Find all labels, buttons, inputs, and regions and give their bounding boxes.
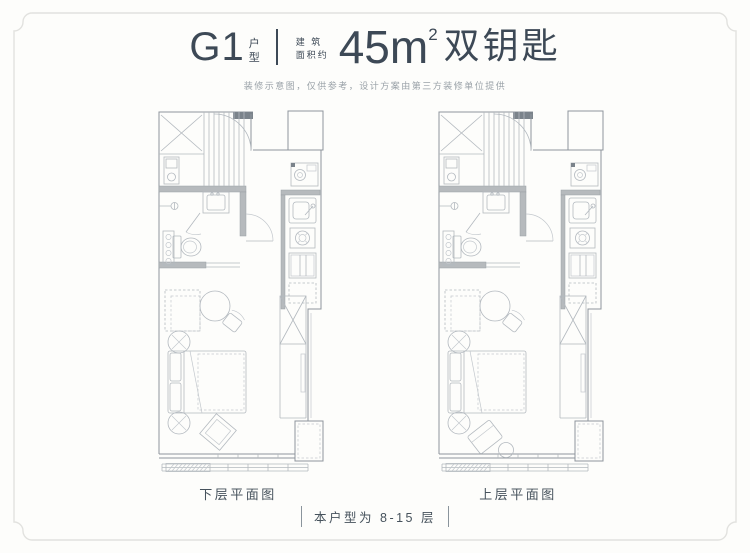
floor-plan-lower: 下层平面图 bbox=[148, 106, 328, 503]
floor-range-note: 本户型为 8-15 层 bbox=[301, 506, 449, 527]
lounge-chair-line bbox=[472, 425, 494, 442]
lounge-chair-seat bbox=[467, 420, 503, 455]
rug-inner bbox=[205, 419, 230, 444]
floor-plan-upper-svg bbox=[428, 106, 608, 478]
unit-type-char-top: 户 bbox=[249, 38, 260, 52]
rug-ottoman bbox=[200, 414, 237, 451]
small-round-table bbox=[499, 443, 514, 458]
floor-plan-upper: 上层平面图 bbox=[428, 106, 608, 503]
disclaimer-text: 装修示意图，仅供参考，设计方案由第三方装修单位提供 bbox=[0, 79, 750, 92]
caption-lower-plan: 下层平面图 bbox=[148, 484, 328, 503]
footer: 本户型为 8-15 层 bbox=[0, 506, 750, 527]
area-label: 建 筑 面积约 bbox=[296, 36, 329, 63]
area-value: 45m bbox=[339, 24, 428, 70]
title-suffix: 双钥匙 bbox=[444, 28, 561, 64]
caption-upper-plan: 上层平面图 bbox=[428, 484, 608, 503]
page-title: G1 户 型 建 筑 面积约 45m 2 双钥匙 bbox=[0, 24, 750, 70]
area-label-line2: 面积约 bbox=[296, 49, 329, 63]
rug-outer bbox=[200, 414, 237, 451]
frame-border-path bbox=[14, 13, 736, 540]
title-divider bbox=[276, 29, 278, 65]
main-title: 45m 2 双钥匙 bbox=[339, 24, 561, 70]
area-superscript: 2 bbox=[428, 26, 437, 43]
area-label-line1: 建 筑 bbox=[296, 36, 329, 50]
lounge-chair bbox=[467, 420, 503, 455]
unit-code: G1 bbox=[189, 27, 244, 67]
unit-type-label: 户 型 bbox=[249, 38, 260, 66]
floor-plan-lower-svg bbox=[148, 106, 328, 478]
unit-type-char-bottom: 型 bbox=[249, 52, 260, 66]
